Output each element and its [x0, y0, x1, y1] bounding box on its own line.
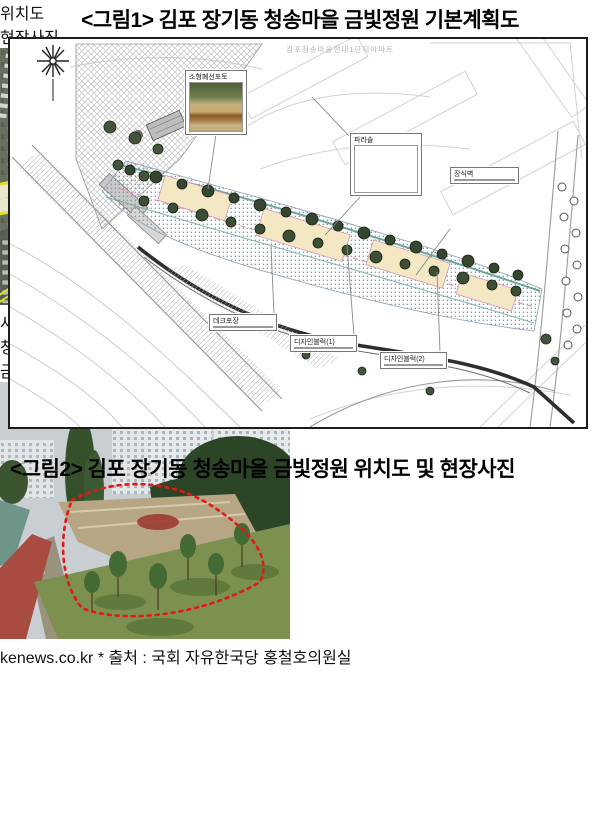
north-compass-icon [37, 45, 69, 101]
inset-caption: 데크포장 [213, 317, 273, 326]
footer: kenews.co.kr * 출처 : 국회 자유한국당 홍철호의원실 [0, 644, 600, 668]
inset-caption: 파라솔 [354, 136, 418, 145]
figure2-title: <그림2> 김포 장기동 청송마을 금빛정원 위치도 및 현장사진 [10, 453, 515, 483]
decor-wall-photo [454, 179, 515, 181]
inset-parasol: 파라솔 [350, 133, 422, 196]
inset-boat-photozone: 소형폐선포토 [185, 70, 247, 135]
deck-paving-photo [213, 326, 273, 328]
inset-caption: 디자인블럭(2) [384, 355, 443, 364]
inset-design-block-1: 디자인블럭(1) [290, 335, 357, 352]
plan-drawing: 김포청송마을현대1단지아파트 [10, 39, 586, 427]
inset-decor-wall: 장식벽 [450, 167, 519, 184]
source-credit: * 출처 : 국회 자유한국당 홍철호의원실 [98, 650, 352, 667]
inset-design-block-2: 디자인블럭(2) [380, 352, 447, 369]
document-page: <그림1> 김포 장기동 청송마을 금빛정원 기본계획도 [0, 0, 600, 824]
watermark-text: kenews.co.kr [0, 650, 93, 667]
inset-caption: 소형폐선포토 [189, 73, 243, 82]
inset-caption: 디자인블럭(1) [294, 338, 353, 347]
boat-photo [189, 82, 243, 132]
inset-deck-paving: 데크포장 [209, 314, 277, 331]
figure1-title: <그림1> 김포 장기동 청송마을 금빛정원 기본계획도 [0, 4, 600, 34]
figure1-plan-frame: 김포청송마을현대1단지아파트 [8, 37, 588, 429]
inset-caption: 장식벽 [454, 170, 515, 179]
plan-bg-label: 김포청송마을현대1단지아파트 [286, 44, 394, 54]
red-soil-patch [137, 514, 179, 530]
design-block1-photo [294, 347, 353, 349]
parasol-photo [354, 145, 418, 193]
design-block2-photo [384, 364, 443, 366]
